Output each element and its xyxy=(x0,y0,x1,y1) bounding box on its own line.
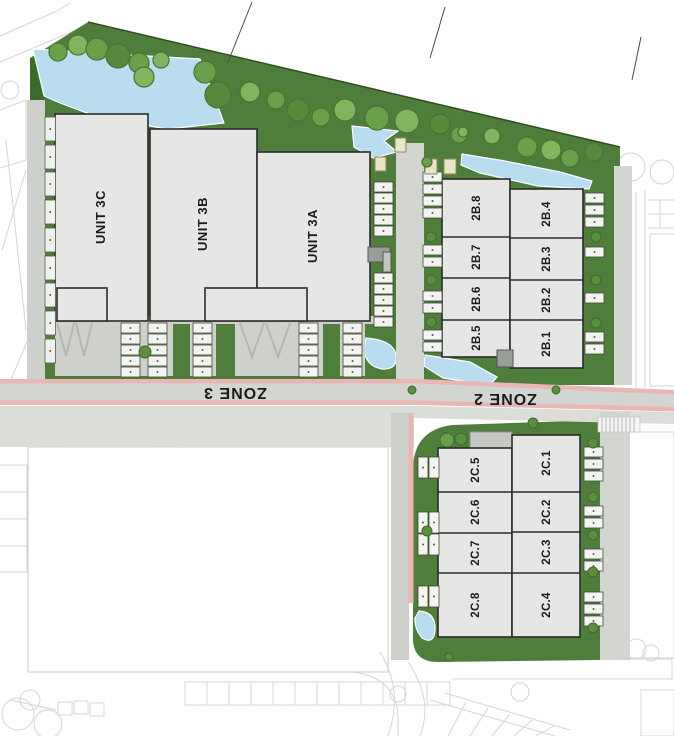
plot-2c7-label: 2C.7 xyxy=(470,540,482,566)
block-2b xyxy=(442,179,583,368)
road-edge-pink-2c xyxy=(409,413,414,603)
zone2-road-label: ZONE 2 xyxy=(473,390,537,407)
east-road-2b xyxy=(614,166,632,385)
zone3-road-label: ZONE 3 xyxy=(203,384,267,401)
plot-2c4-label: 2C.4 xyxy=(541,592,553,618)
plot-2c3-label: 2C.3 xyxy=(541,539,553,565)
unit-3b3a-dock xyxy=(205,288,307,321)
plot-2b3-label: 2B.3 xyxy=(541,246,553,272)
spine-road-central xyxy=(396,143,424,383)
unit-3b-label: UNIT 3B xyxy=(195,197,210,251)
plot-2c1-label: 2C.1 xyxy=(541,450,553,476)
plot-2b8-label: 2B.8 xyxy=(471,195,483,221)
unit-3c-dock xyxy=(57,288,107,321)
plot-2b2-label: 2B.2 xyxy=(541,287,553,313)
plot-2b5-label: 2B.5 xyxy=(471,325,483,351)
plot-2c8-label: 2C.8 xyxy=(470,592,482,618)
parking-west-column xyxy=(45,117,56,363)
plot-2b6-label: 2B.6 xyxy=(471,286,483,312)
block-2c xyxy=(438,435,580,637)
unit-3c-label: UNIT 3C xyxy=(93,190,108,244)
crossing-hatch xyxy=(598,417,640,432)
unit-3a-label: UNIT 3A xyxy=(305,209,320,263)
west-road-2c xyxy=(391,413,409,660)
block-2c-canopy xyxy=(470,432,512,448)
west-access-road xyxy=(27,100,45,385)
plot-2c6-label: 2C.6 xyxy=(470,499,482,525)
plot-2b1-label: 2B.1 xyxy=(541,331,553,357)
plot-2b4-label: 2B.4 xyxy=(541,201,553,227)
plot-2c2-label: 2C.2 xyxy=(541,499,553,525)
substation-2b xyxy=(497,350,513,367)
plot-2c5-label: 2C.5 xyxy=(470,457,482,483)
site-plan-svg: UNIT 3C UNIT 3B UNIT 3A 2B.8 2B.7 2B.6 2… xyxy=(0,0,674,736)
east-road-2c xyxy=(600,412,630,660)
substation-central-annex xyxy=(383,252,391,272)
masterplan-canvas: UNIT 3C UNIT 3B UNIT 3A 2B.8 2B.7 2B.6 2… xyxy=(0,0,674,736)
plot-2b7-label: 2B.7 xyxy=(471,244,483,270)
